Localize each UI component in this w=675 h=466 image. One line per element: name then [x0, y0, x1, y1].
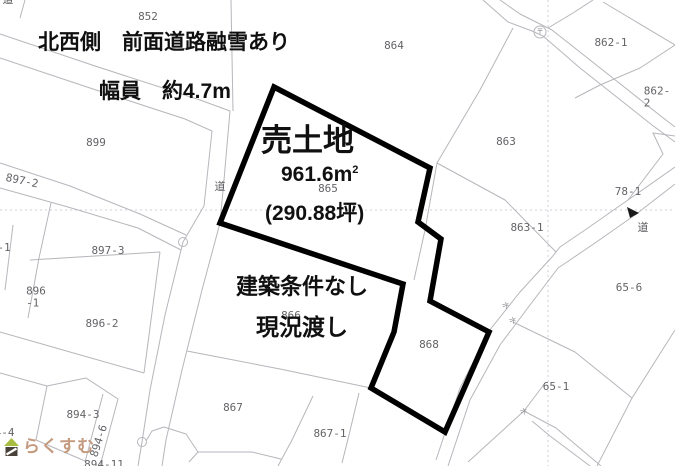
land-area-unit: m: [334, 163, 353, 186]
parcel-label-897-3: 897-3: [91, 245, 124, 257]
parcel-label-65-6: 65-6: [616, 282, 643, 294]
parcel-label-896-2: 896-2: [85, 318, 118, 330]
parcel-label-862-1: 862-1: [594, 37, 627, 49]
cadastral-map-page: 852864862-1862-2899863897-2道道86578-1道863…: [0, 0, 675, 466]
parcel-label-867-1: 867-1: [313, 428, 346, 440]
road-label-top-left: 道: [3, 0, 14, 6]
parcel-label-863-1: 863-1: [510, 222, 543, 234]
marker-label-post: 〒: [537, 28, 544, 35]
land-area-sqm: 961.6m2: [281, 164, 358, 185]
parcel-label-899: 899: [86, 137, 106, 149]
condition-no-building-terms: 建築条件なし: [236, 276, 368, 298]
parcel-label-862-2: 862-2: [644, 85, 671, 108]
parcel-label-863: 863: [496, 136, 516, 148]
parcel-label-868: 868: [419, 339, 439, 351]
road-label-right: 道: [638, 222, 649, 234]
parcel-label-852: 852: [138, 11, 158, 23]
rakusumu-logo: らくすむ: [3, 437, 95, 457]
road-label-center: 道: [215, 181, 226, 193]
parcel-label-867: 867: [223, 402, 243, 414]
land-area-unit-exponent: 2: [352, 164, 358, 176]
parcel-label-894-3: 894-3: [66, 409, 99, 421]
logo-text: らくすむ: [23, 437, 95, 457]
parcel-label-896-1: 896 -1: [26, 285, 46, 308]
parcel-label-864: 864: [384, 40, 404, 52]
parcel-label-65-1: 65-1: [543, 381, 570, 393]
grid-dashed-lines: [0, 0, 675, 466]
sale-land-title: 売土地: [261, 125, 354, 156]
land-area-value: 961.6: [281, 163, 334, 186]
parcel-boundary-lines: [0, 0, 675, 466]
parcel-label-894-11: 894-11: [84, 459, 124, 466]
land-area-tsubo: (290.88坪): [265, 203, 364, 224]
parcel-label-fragment-1: -1: [0, 242, 11, 254]
note-road-width: 幅員 約4.7m: [99, 81, 231, 102]
note-front-road-snowmelt: 北西側 前面道路融雪あり: [38, 32, 290, 53]
condition-as-is: 現況渡し: [256, 316, 348, 339]
house-icon: [3, 437, 20, 457]
parcel-label-78-1: 78-1: [615, 186, 642, 198]
cadastral-map-canvas: [0, 0, 675, 466]
